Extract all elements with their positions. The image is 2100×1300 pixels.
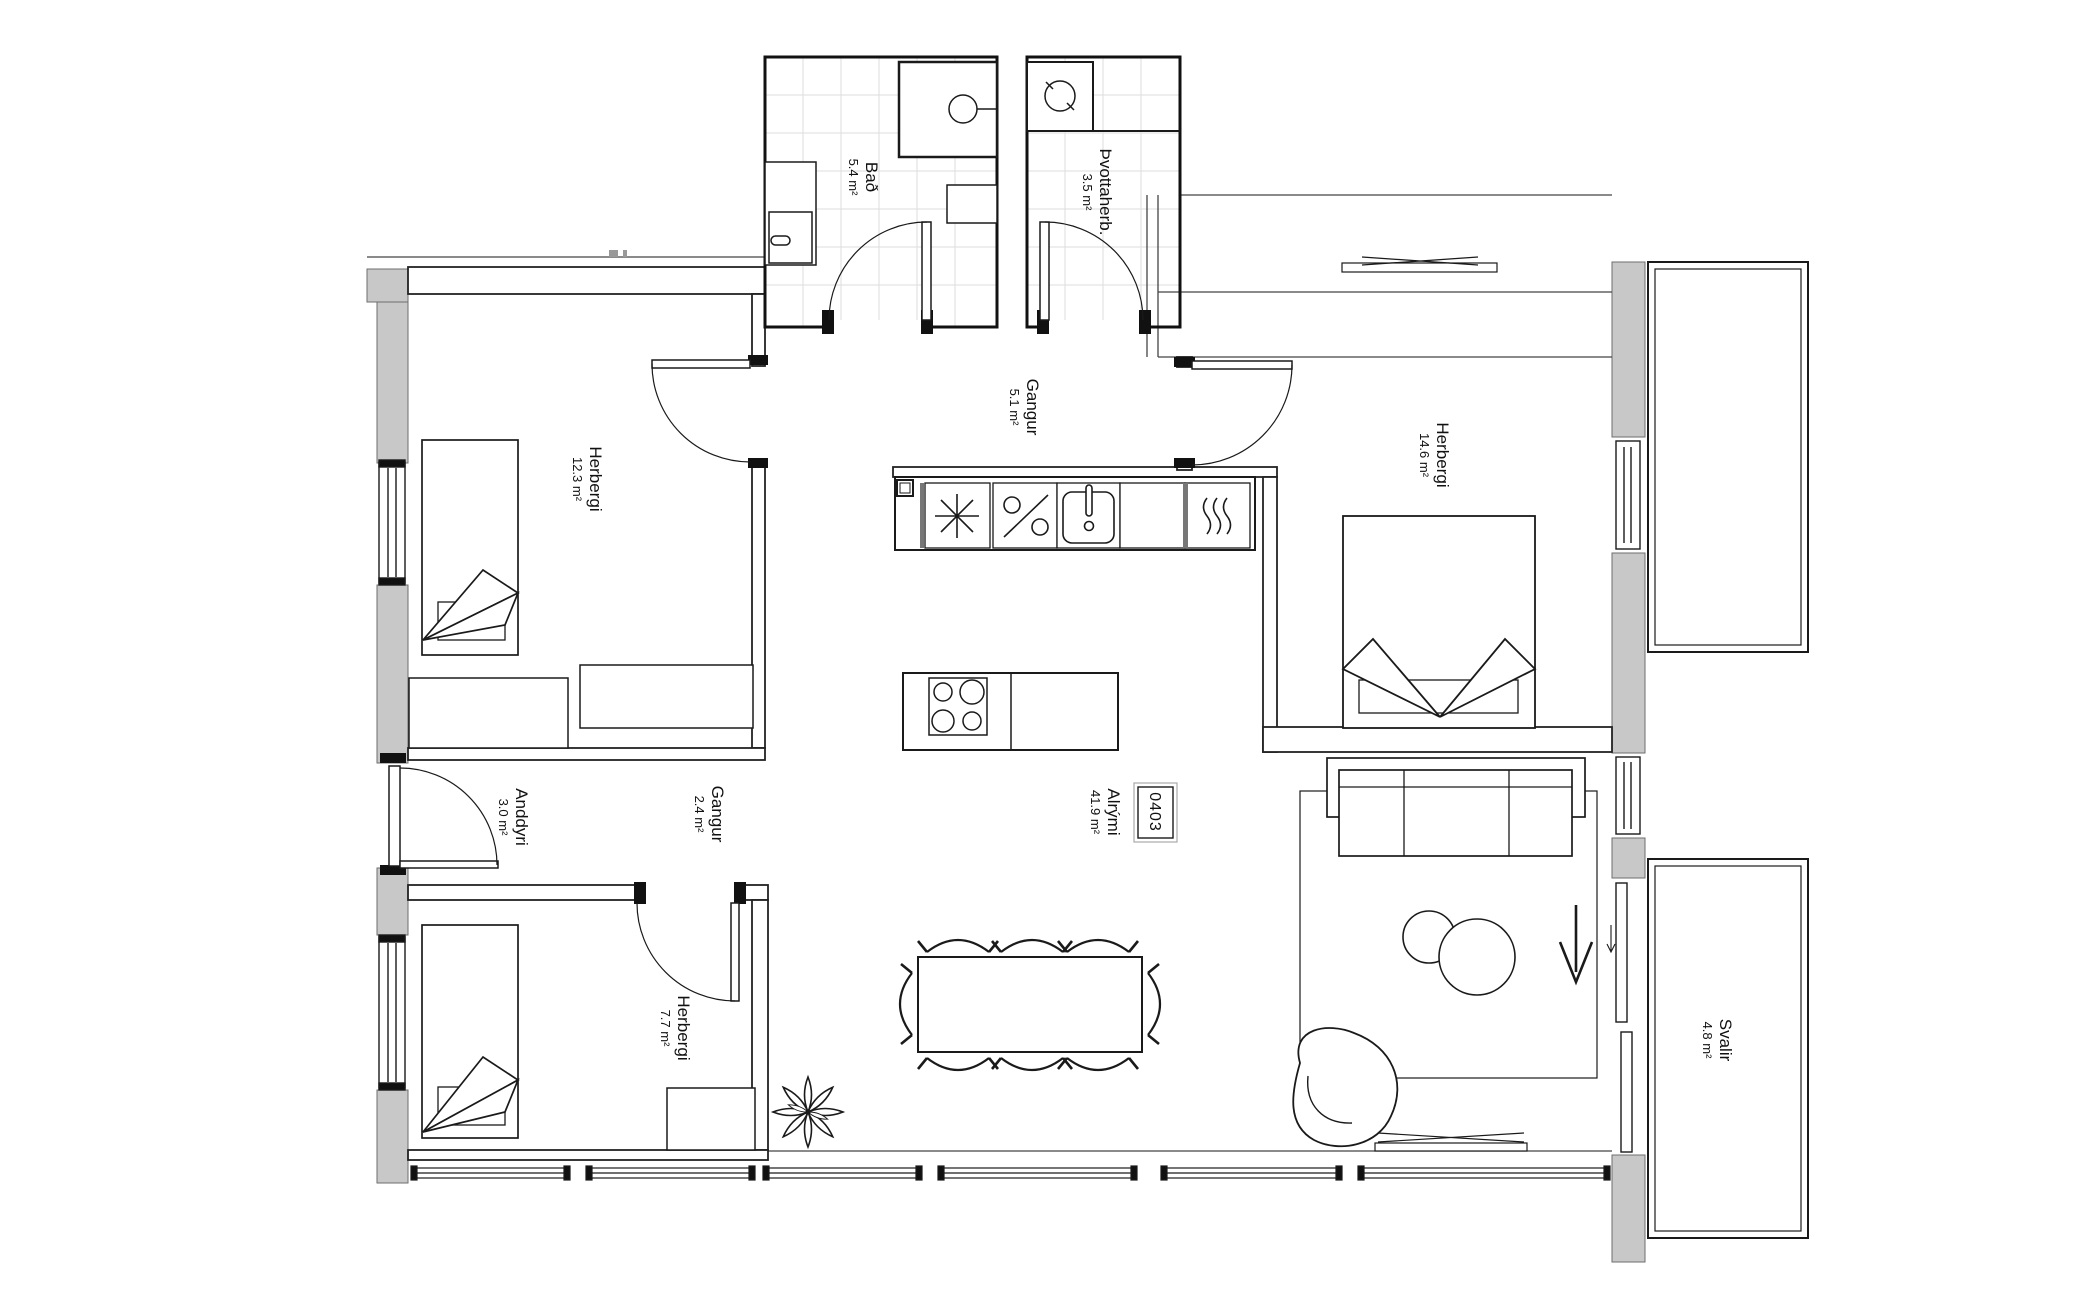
entrance-door bbox=[389, 766, 498, 868]
toilet-icon bbox=[947, 185, 997, 223]
svg-text:Herbergi: Herbergi bbox=[586, 446, 605, 511]
direction-arrow-icon bbox=[1560, 905, 1592, 982]
freezer-icon bbox=[935, 494, 979, 538]
room-label-svalir: Svalir 4.8 m² bbox=[1700, 1019, 1735, 1062]
sliding-balcony-door bbox=[1607, 883, 1632, 1152]
wardrobe bbox=[580, 665, 753, 728]
unit-number-badge: 0403 bbox=[1134, 783, 1177, 842]
bed-single bbox=[422, 925, 518, 1138]
svg-text:4.8 m²: 4.8 m² bbox=[1700, 1022, 1715, 1060]
svg-text:Þvottaherb.: Þvottaherb. bbox=[1096, 149, 1115, 236]
svg-text:14.6 m²: 14.6 m² bbox=[1417, 433, 1432, 478]
dining-set bbox=[900, 940, 1160, 1070]
svg-text:Anddyri: Anddyri bbox=[512, 788, 531, 846]
svg-text:7.7 m²: 7.7 m² bbox=[658, 1010, 673, 1048]
svg-text:5.4 m²: 5.4 m² bbox=[846, 159, 861, 197]
bathroom-door bbox=[829, 222, 931, 320]
vanity-sink-icon bbox=[765, 162, 816, 265]
floor-plan-canvas: Bað 5.4 m² Þvottaherb. 3.5 m² Gangur 5.1… bbox=[0, 0, 2100, 1300]
svg-text:Gangur: Gangur bbox=[708, 786, 727, 843]
dining-table bbox=[918, 957, 1142, 1052]
chair-icon bbox=[1148, 964, 1160, 1044]
floor-plan-page: Bað 5.4 m² Þvottaherb. 3.5 m² Gangur 5.1… bbox=[0, 0, 2100, 1300]
room-label-alrymi: Alrými 41.9 m² bbox=[1088, 788, 1123, 835]
svg-text:Bað: Bað bbox=[862, 162, 881, 192]
neighbor-balcony bbox=[1648, 262, 1808, 652]
bed-double bbox=[1343, 516, 1535, 728]
window bbox=[379, 460, 405, 585]
laundry-door bbox=[1040, 222, 1143, 320]
svg-text:5.1 m²: 5.1 m² bbox=[1007, 389, 1022, 427]
desk bbox=[667, 1088, 755, 1150]
room-label-herbergi-14: Herbergi 14.6 m² bbox=[1417, 422, 1452, 487]
window bbox=[1616, 757, 1640, 834]
svg-text:Herbergi: Herbergi bbox=[1433, 422, 1452, 487]
svg-text:Herbergi: Herbergi bbox=[674, 995, 693, 1060]
chair-icon bbox=[918, 940, 998, 952]
wardrobe-track bbox=[1342, 257, 1497, 272]
bedroom-7-furniture bbox=[422, 925, 755, 1150]
room-label-herbergi-12: Herbergi 12.3 m² bbox=[570, 446, 605, 511]
room-label-thvottaherb: Þvottaherb. 3.5 m² bbox=[1080, 149, 1115, 236]
chair-icon bbox=[900, 964, 912, 1044]
svg-text:Gangur: Gangur bbox=[1023, 379, 1042, 436]
plant-icon bbox=[773, 1077, 843, 1147]
room-label-herbergi-7: Herbergi 7.7 m² bbox=[658, 995, 693, 1060]
kitchen-counter bbox=[895, 477, 1255, 550]
window bbox=[1616, 441, 1640, 549]
shower-icon bbox=[899, 62, 997, 157]
svg-text:0403: 0403 bbox=[1146, 792, 1163, 832]
window bbox=[379, 935, 405, 1090]
kitchen-island bbox=[903, 673, 1118, 750]
bedroom-14-furniture bbox=[1342, 257, 1535, 728]
cooktop-icon bbox=[929, 678, 987, 735]
svg-text:2.4 m²: 2.4 m² bbox=[692, 796, 707, 834]
svg-text:41.9 m²: 41.9 m² bbox=[1088, 790, 1103, 835]
balconies bbox=[1648, 262, 1808, 1238]
sofa bbox=[1327, 758, 1585, 856]
room-label-gangur-5: Gangur 5.1 m² bbox=[1007, 379, 1042, 436]
window-band bbox=[411, 1166, 1610, 1180]
bedroom-7-door bbox=[637, 903, 739, 1001]
wall-joint-ticks bbox=[609, 250, 627, 257]
bed-single bbox=[422, 440, 518, 655]
svg-text:12.3 m²: 12.3 m² bbox=[570, 457, 585, 502]
bedroom-14-door bbox=[1192, 361, 1292, 465]
washing-machine-icon bbox=[1027, 62, 1093, 131]
living-area bbox=[1293, 758, 1597, 1151]
armchair bbox=[1293, 1028, 1397, 1146]
room-label-anddyri: Anddyri 3.0 m² bbox=[496, 788, 531, 846]
svg-text:Svalir: Svalir bbox=[1716, 1019, 1735, 1062]
chair-icon bbox=[918, 1058, 998, 1070]
bedroom-12-door bbox=[652, 360, 750, 462]
desk bbox=[409, 678, 568, 748]
room-label-gangur-2: Gangur 2.4 m² bbox=[692, 786, 727, 843]
svg-text:Alrými: Alrými bbox=[1104, 788, 1123, 835]
svg-text:3.5 m²: 3.5 m² bbox=[1080, 174, 1095, 212]
coffee-table bbox=[1439, 919, 1515, 995]
tv-bench bbox=[1375, 1133, 1527, 1151]
svg-text:3.0 m²: 3.0 m² bbox=[496, 799, 511, 837]
sink-icon bbox=[1063, 485, 1114, 543]
room-label-bad: Bað 5.4 m² bbox=[846, 159, 881, 197]
